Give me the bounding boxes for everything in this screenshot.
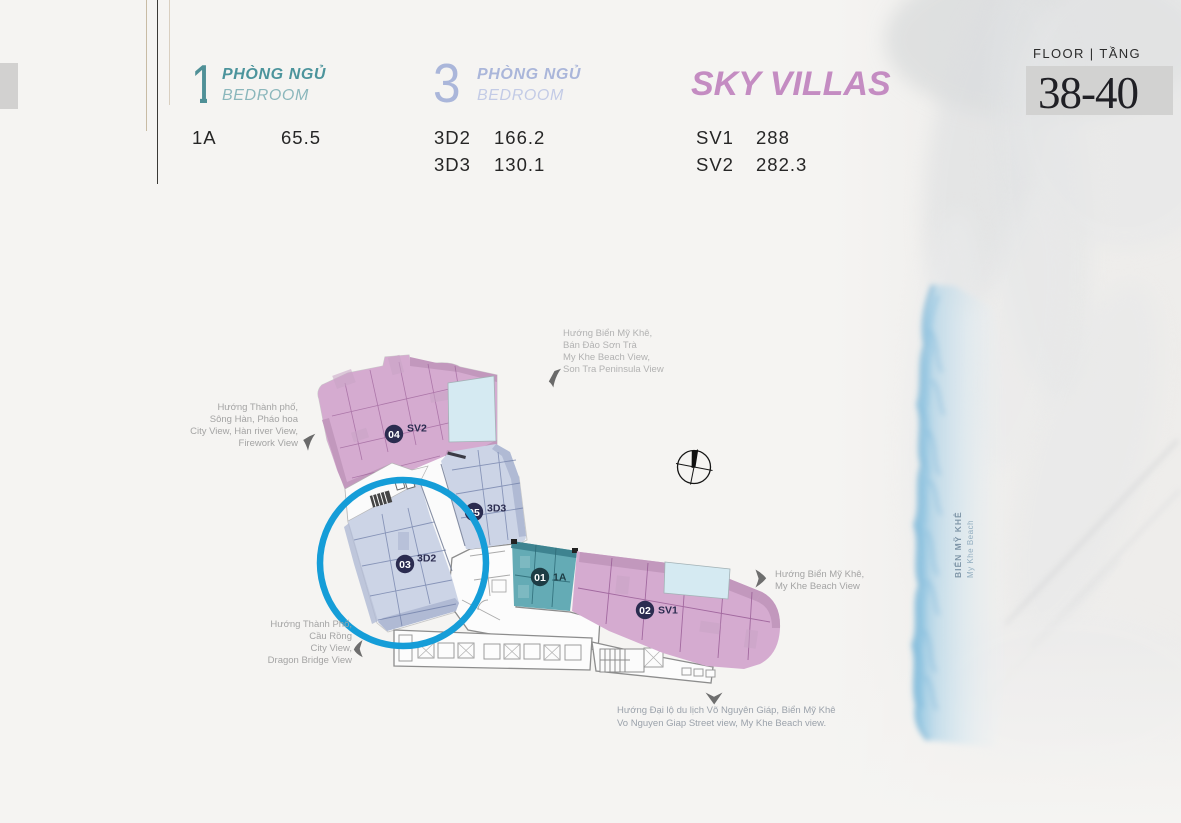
svg-text:1A: 1A bbox=[553, 572, 567, 584]
svg-text:02: 02 bbox=[639, 605, 651, 617]
svg-text:SV1: SV1 bbox=[658, 605, 678, 617]
svg-text:My Khe Beach: My Khe Beach bbox=[966, 520, 975, 578]
svg-text:BIỂN MỸ KHÊ: BIỂN MỸ KHÊ bbox=[952, 511, 963, 578]
svg-text:01: 01 bbox=[534, 572, 546, 584]
svg-text:SV2: SV2 bbox=[407, 423, 427, 435]
svg-text:04: 04 bbox=[388, 429, 400, 441]
svg-text:03: 03 bbox=[399, 559, 411, 571]
svg-text:3D2: 3D2 bbox=[417, 553, 436, 565]
svg-text:3D3: 3D3 bbox=[487, 503, 506, 515]
